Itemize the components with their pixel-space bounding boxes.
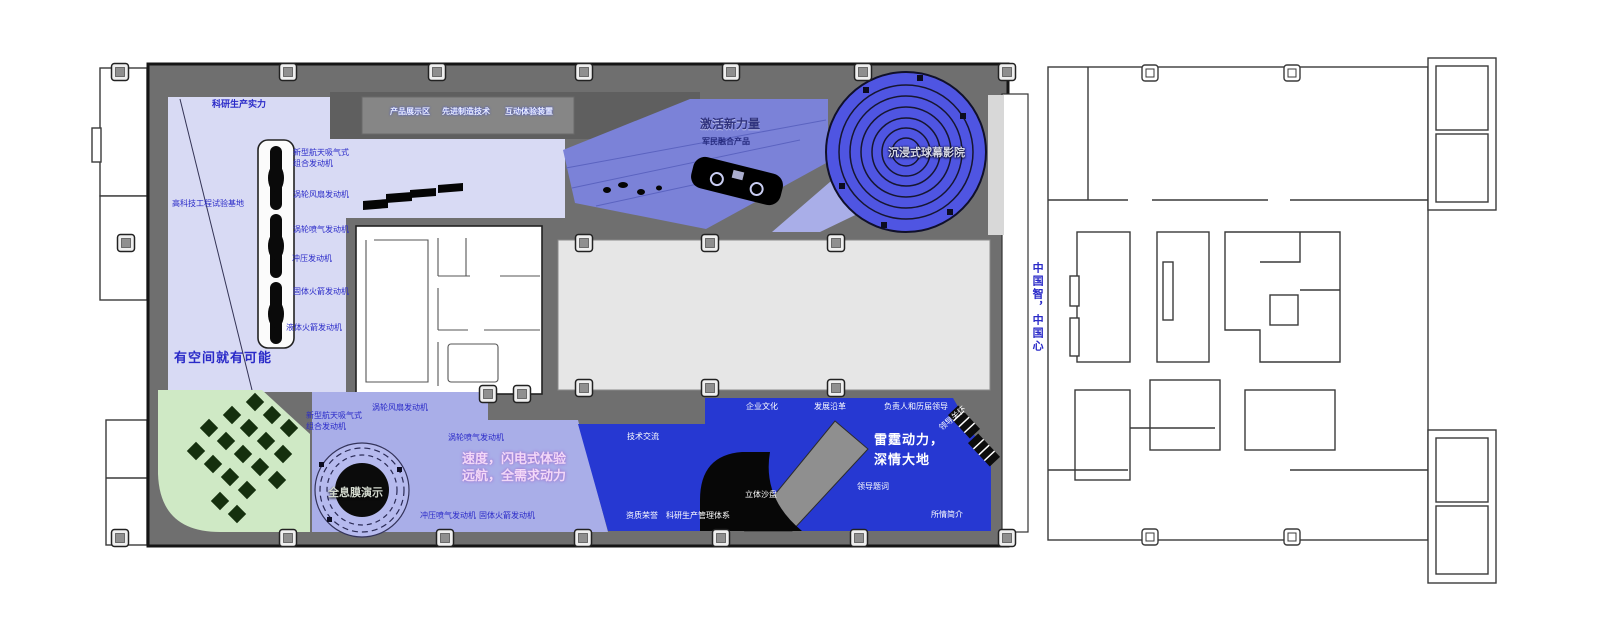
research-zone-title: 科研生产实力: [212, 101, 266, 111]
floor-plan-canvas: 科研生产实力 高科技工程试验基地 新型航天吸气式 组合发动机 涡轮风扇发动机 涡…: [0, 0, 1600, 631]
history-label: 发展沿革: [814, 403, 846, 412]
engine-label-turbojet: 涡轮喷气发动机: [293, 226, 349, 235]
engine-display-case: [258, 140, 294, 348]
s-engine-label-combined-1: 新型航天吸气式: [306, 412, 362, 421]
s-engine-label-ramjet: 冲压喷气发动机: [420, 512, 476, 521]
inscription-label: 领导题词: [857, 483, 889, 492]
s-engine-label-turbofan: 涡轮风扇发动机: [372, 404, 428, 413]
dome-side-strip: [988, 95, 1004, 235]
new-power-title: 激活新力量: [700, 118, 760, 131]
corp-slogan-line1: 雷霆动力，: [874, 434, 944, 448]
engine-label-combined-1: 新型航天吸气式: [293, 149, 349, 158]
engine-label-ramjet: 冲压发动机: [292, 255, 332, 264]
holo-demo-label: 全息膜演示: [328, 487, 383, 499]
wall-exhibit-3: 互动体验装置: [505, 108, 553, 117]
s-engine-label-solid-rocket: 固体火箭发动机: [479, 512, 535, 521]
management-label: 科研生产管理体系: [666, 512, 730, 521]
speed-slogan-line2: 远航，全需求动力: [462, 470, 566, 484]
left-wing-plan: [92, 68, 147, 545]
wall-exhibit-2: 先进制造技术: [442, 108, 490, 117]
culture-label: 企业文化: [746, 403, 778, 412]
leaders-label: 负责人和历届领导: [884, 403, 948, 412]
central-core: [356, 226, 542, 394]
wall-exhibit-1: 产品展示区: [390, 108, 430, 117]
intro-label: 所情简介: [931, 511, 963, 520]
s-engine-label-combined-2: 组合发动机: [306, 423, 346, 432]
new-power-subtitle: 军民融合产品: [702, 138, 750, 147]
engine-silhouettes: [268, 146, 284, 344]
floor-plan-drawing: [0, 0, 1600, 631]
engine-label-combined-2: 组合发动机: [293, 160, 333, 169]
test-base-label: 高科技工程试验基地: [172, 200, 244, 209]
corp-slogan-line2: 深情大地: [874, 454, 930, 468]
east-corridor: [1002, 94, 1028, 532]
central-hall: [558, 240, 990, 390]
engine-label-turbofan: 涡轮风扇发动机: [293, 191, 349, 200]
s-engine-label-turbojet: 涡轮喷气发动机: [448, 434, 504, 443]
honors-label: 资质荣誉: [626, 512, 658, 521]
tech-exchange-label: 技术交流: [627, 433, 659, 442]
speed-slogan-line1: 速度，闪电式体验: [462, 453, 566, 467]
sand-table-label: 立体沙盘: [745, 491, 777, 500]
right-wing-plan: [1048, 58, 1496, 583]
engine-label-liquid-rocket: 液体火箭发动机: [286, 324, 342, 333]
engine-label-solid-rocket: 固体火箭发动机: [293, 288, 349, 297]
space-slogan: 有空间就有可能: [174, 352, 272, 366]
dome-theater-label: 沉浸式球幕影院: [888, 147, 965, 159]
east-corridor-label: 中国智，中国心: [1031, 262, 1043, 377]
